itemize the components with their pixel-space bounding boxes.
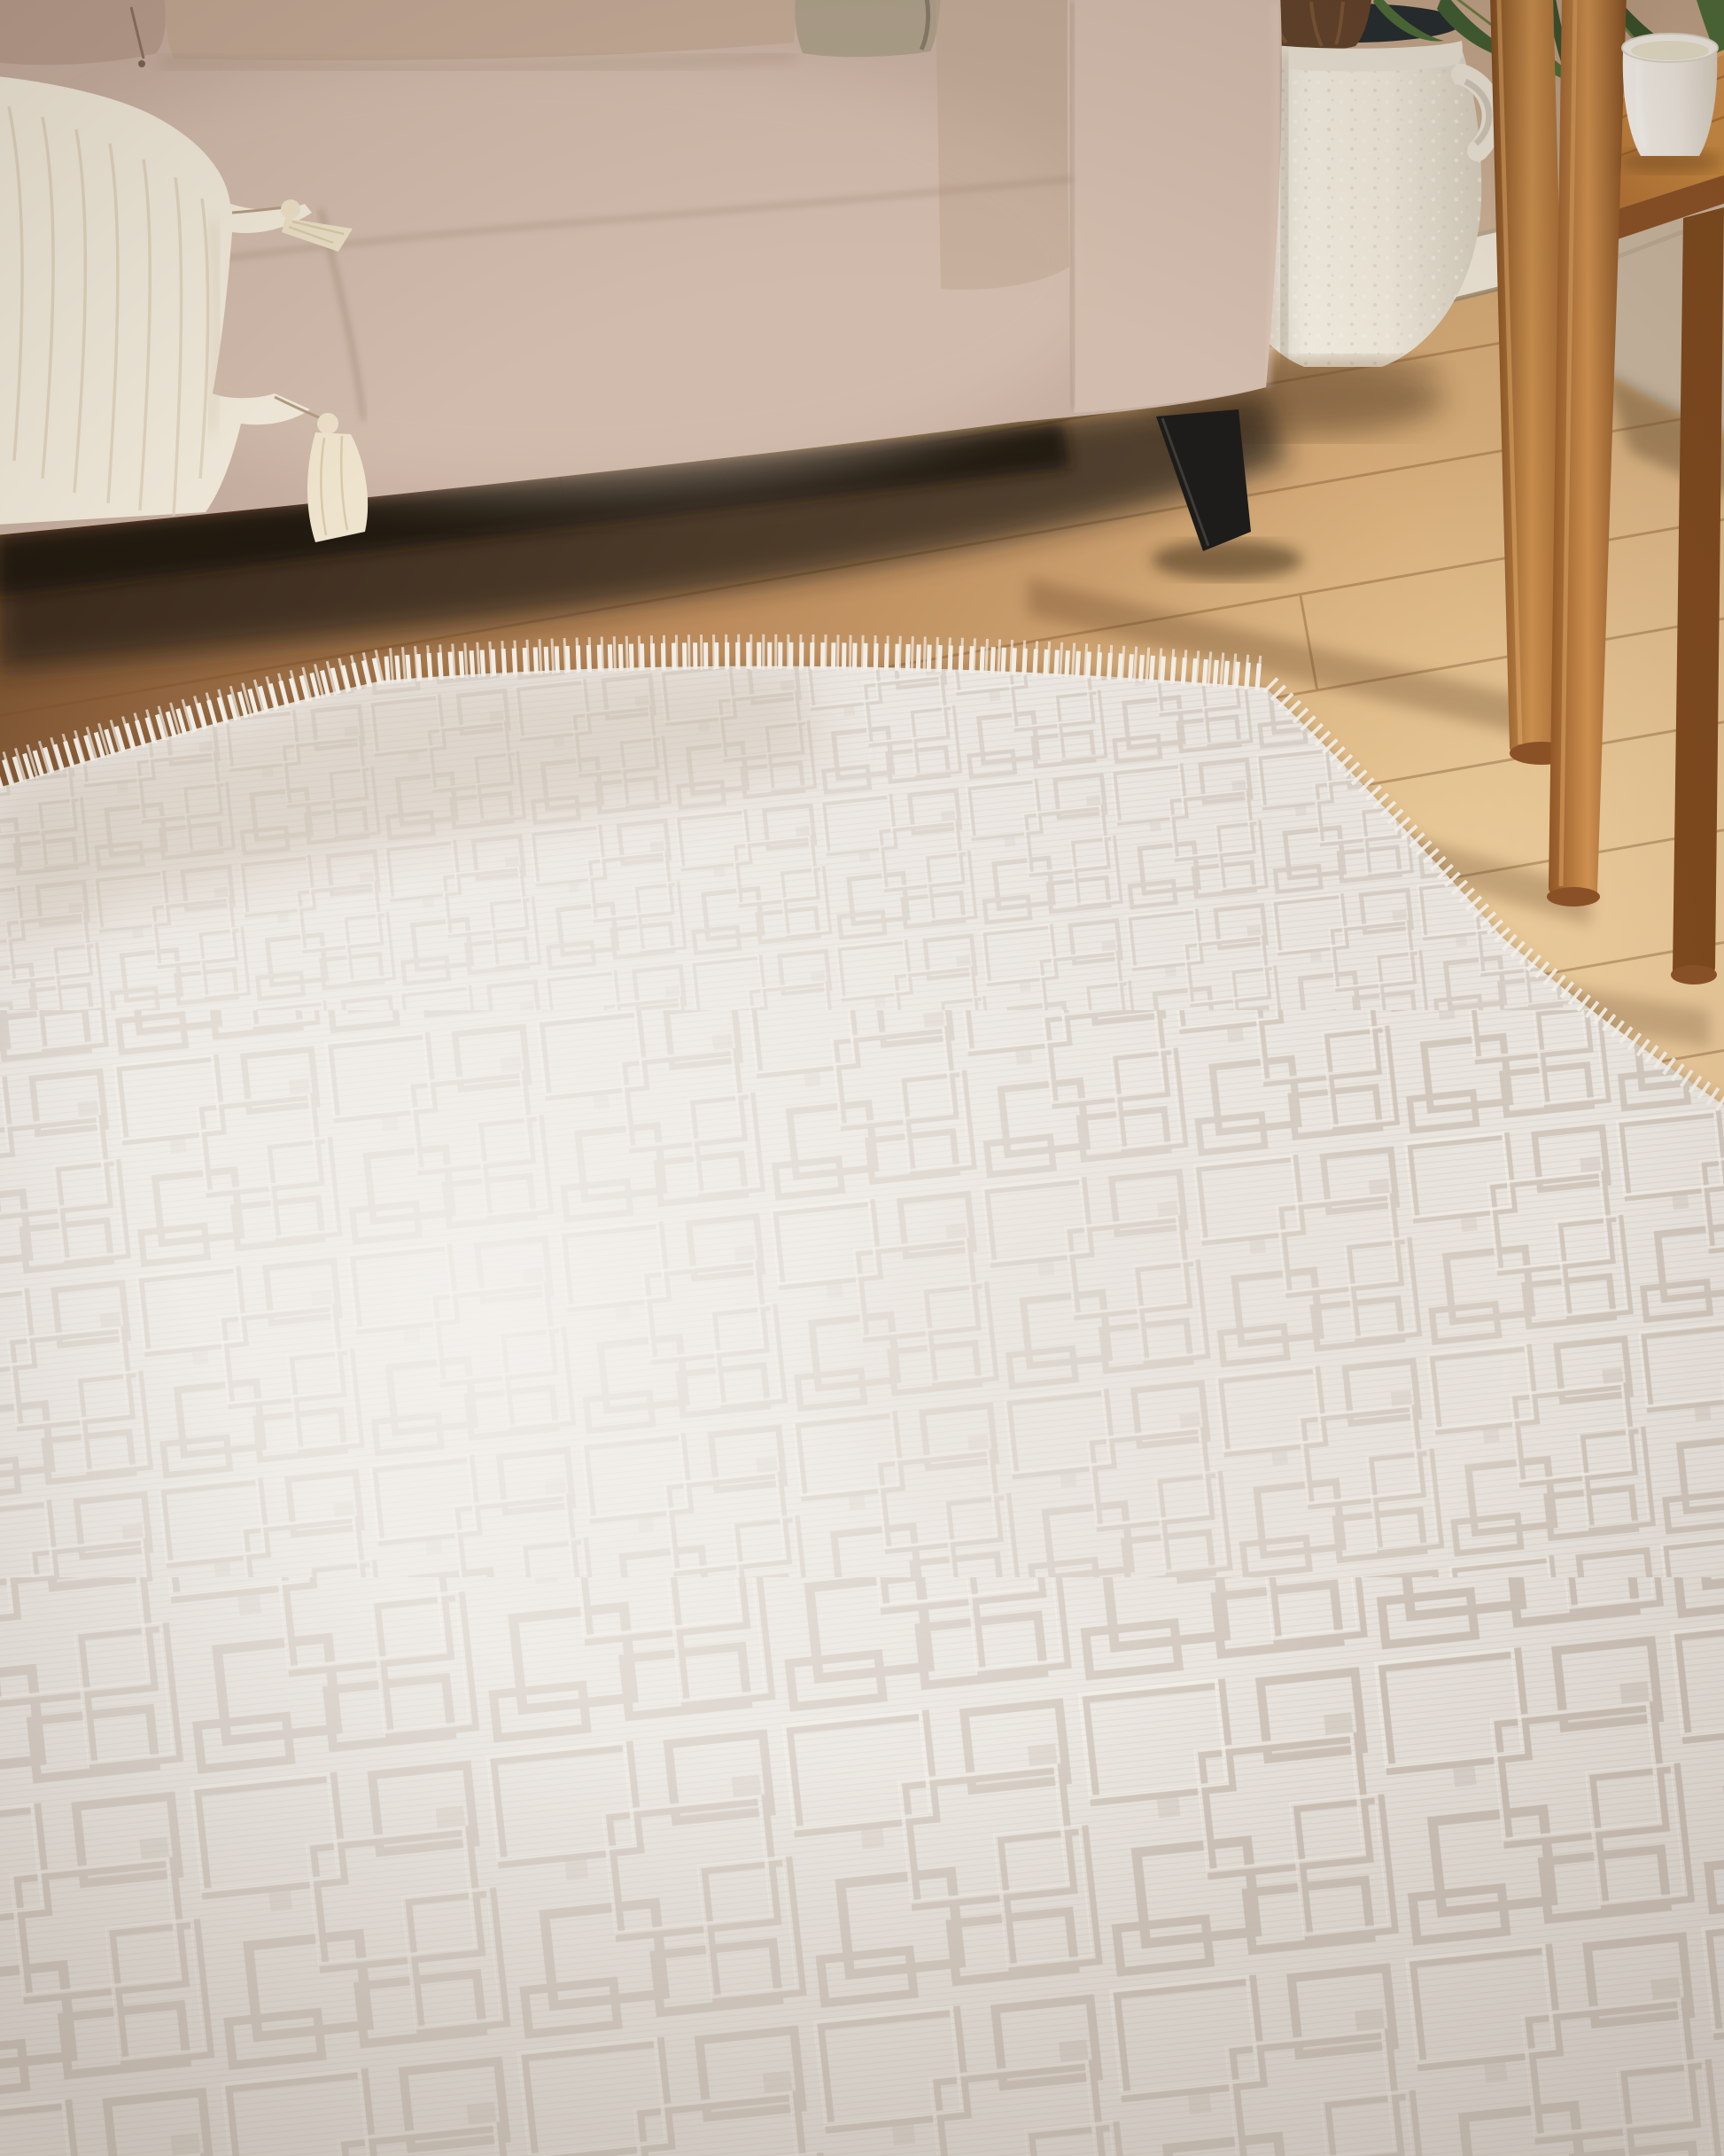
living-room-product-photo (0, 0, 1724, 2156)
photo-vignette (0, 0, 1724, 2156)
scene-illustration (0, 0, 1724, 2156)
